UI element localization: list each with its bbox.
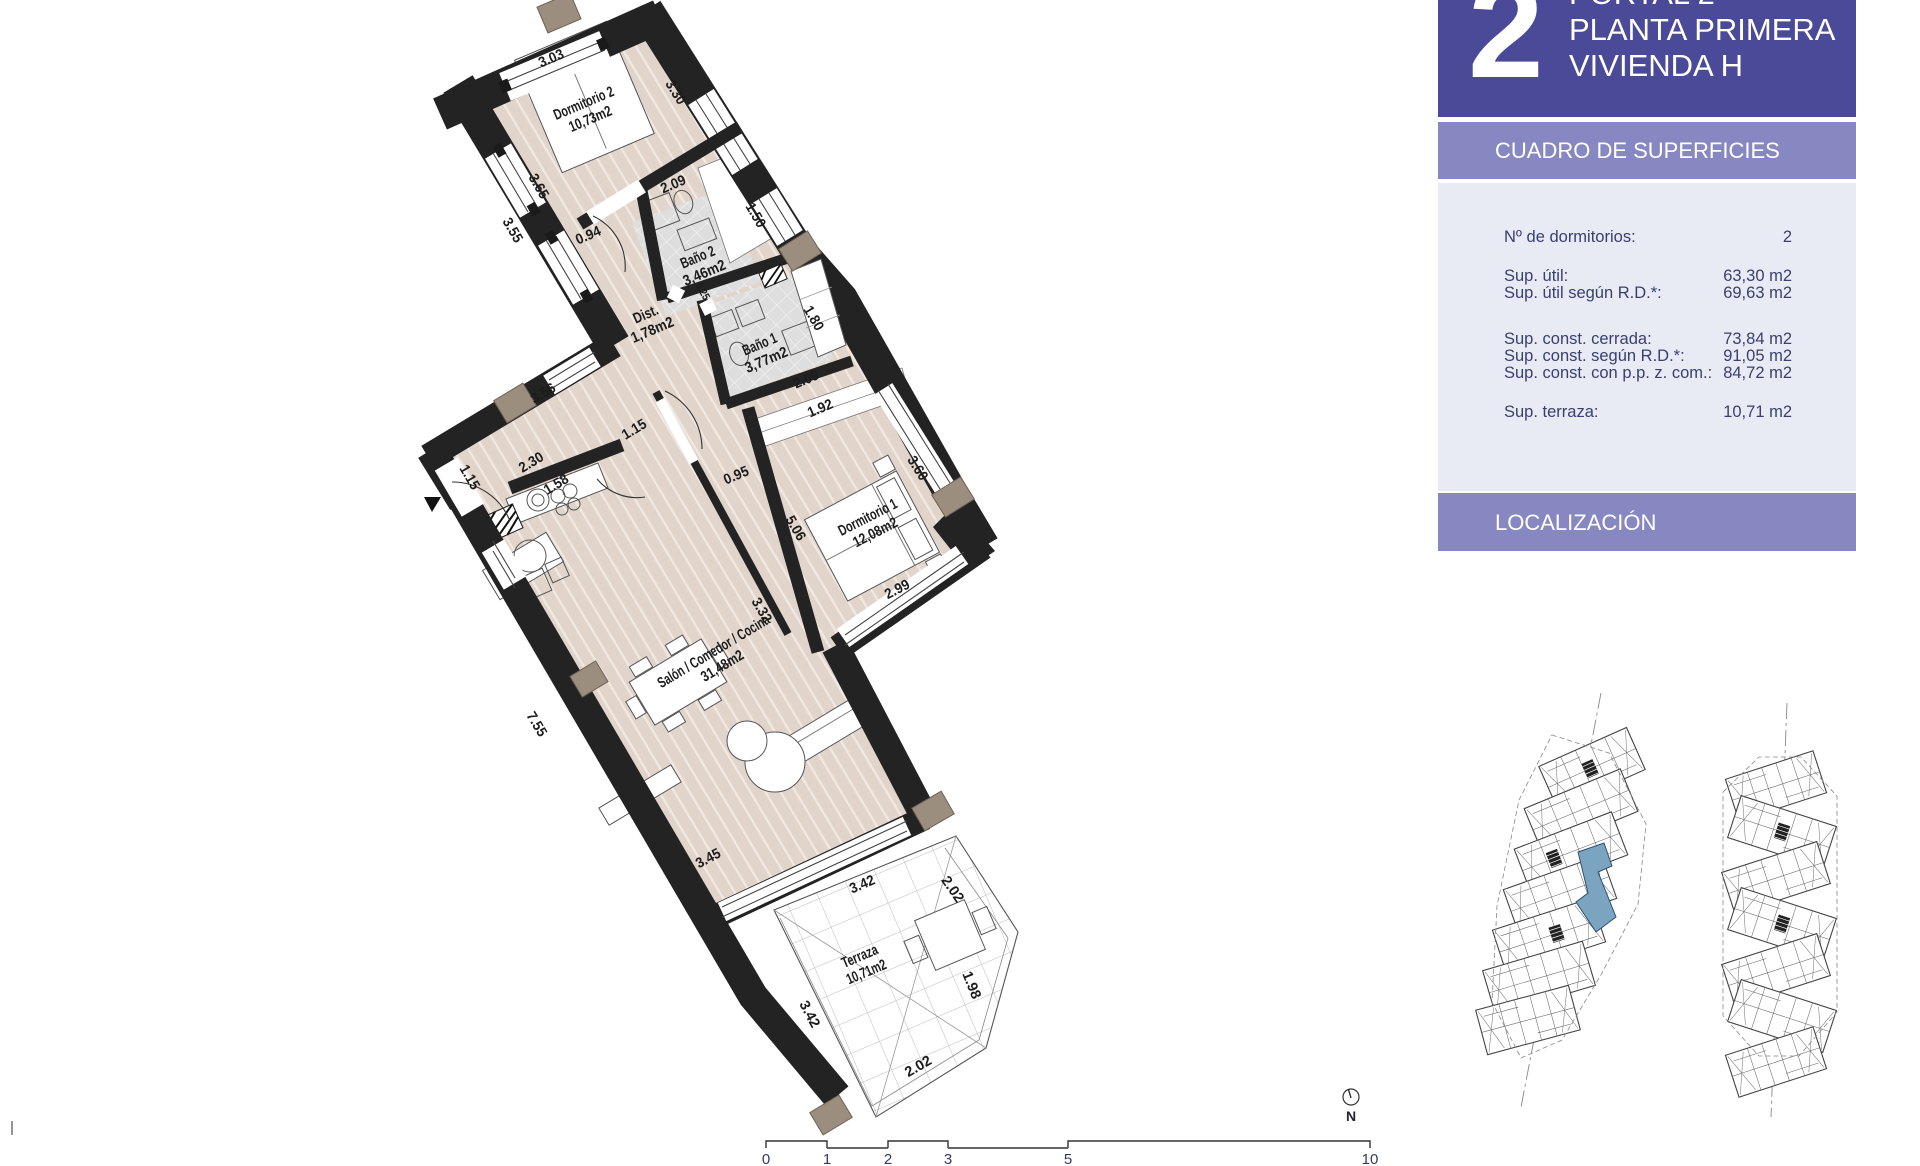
svg-text:2: 2 — [884, 1151, 892, 1166]
svg-text:3: 3 — [944, 1151, 952, 1166]
svg-text:7.55: 7.55 — [523, 709, 550, 740]
svg-text:1: 1 — [823, 1151, 831, 1166]
svg-text:3.42: 3.42 — [795, 998, 822, 1030]
svg-text:N: N — [1346, 1108, 1356, 1124]
svg-text:5: 5 — [1064, 1151, 1072, 1166]
svg-text:0: 0 — [762, 1151, 770, 1166]
svg-text:10: 10 — [1362, 1151, 1379, 1166]
